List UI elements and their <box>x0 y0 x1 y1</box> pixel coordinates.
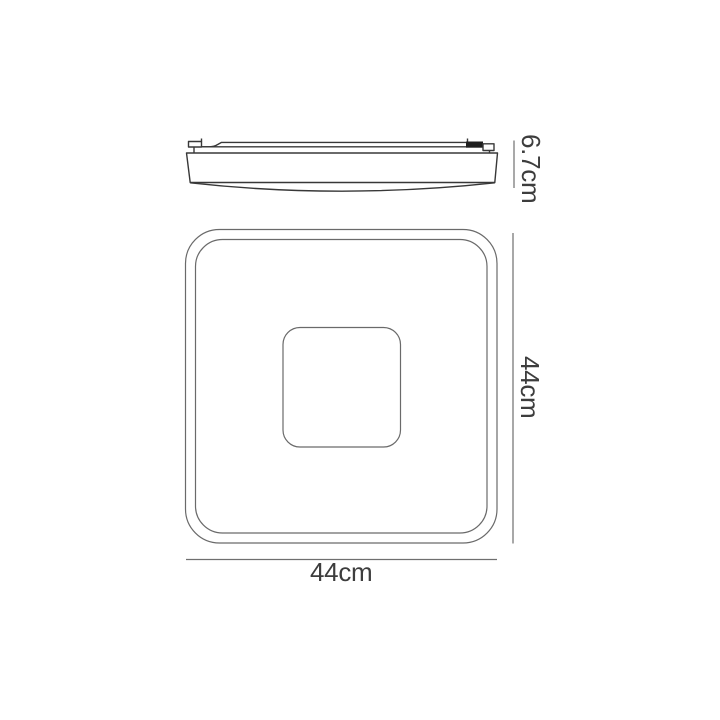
left-clip-icon <box>189 142 202 148</box>
outer-frame-outline <box>186 230 498 544</box>
side-view-drawing <box>187 139 498 192</box>
dimension-lines <box>186 141 514 560</box>
diffuser-curve <box>190 183 495 191</box>
right-clip-tab-icon <box>483 144 494 151</box>
top-view-drawing <box>186 230 498 544</box>
lamp-body-outline <box>187 153 498 183</box>
inner-frame-outline <box>196 240 488 534</box>
top-width-dimension-label: 44cm <box>310 559 372 585</box>
right-clip-icon <box>466 142 483 148</box>
side-height-dimension-label: 6.7cm <box>518 134 544 203</box>
top-height-dimension-label: 44cm <box>517 356 543 418</box>
line-drawing <box>0 0 720 720</box>
diagram-canvas: 6.7cm 44cm 44cm <box>0 0 720 720</box>
centre-panel-outline <box>283 328 401 448</box>
